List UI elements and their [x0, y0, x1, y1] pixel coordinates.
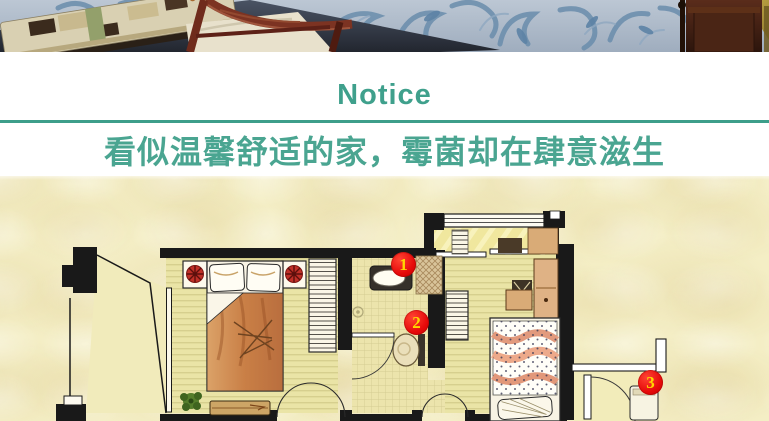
double-bed	[207, 261, 283, 391]
notice-section: Notice	[0, 52, 769, 120]
floor-plan-section: 1 2 3	[0, 176, 769, 421]
red-lamp-icon	[286, 266, 303, 283]
hero-photo	[0, 0, 769, 52]
cabinet	[678, 0, 769, 52]
dresser	[534, 259, 558, 318]
marker-1-number: 1	[399, 256, 408, 273]
marker-3-number: 3	[646, 374, 655, 391]
hero-photo-art	[0, 0, 769, 52]
marker-1: 1	[391, 252, 416, 277]
notice-subtitle: 看似温馨舒适的家，霉菌却在肆意滋生	[104, 127, 665, 173]
marker-2: 2	[404, 310, 429, 335]
side-table	[506, 290, 532, 310]
marker-2-number: 2	[412, 314, 421, 331]
promo-page: Notice 看似温馨舒适的家，霉菌却在肆意滋生	[0, 0, 769, 421]
subtitle-section: 看似温馨舒适的家，霉菌却在肆意滋生	[0, 123, 769, 176]
plant-icon	[180, 392, 202, 411]
wardrobe	[309, 259, 336, 352]
toilet	[393, 334, 425, 366]
single-bed	[490, 318, 560, 421]
wardrobe	[446, 291, 468, 340]
marker-3: 3	[638, 370, 663, 395]
bench	[210, 401, 270, 415]
bed-pillow	[497, 396, 552, 420]
red-lamp-icon	[187, 266, 204, 283]
left-ledge	[64, 396, 82, 405]
notice-title: Notice	[337, 79, 432, 112]
